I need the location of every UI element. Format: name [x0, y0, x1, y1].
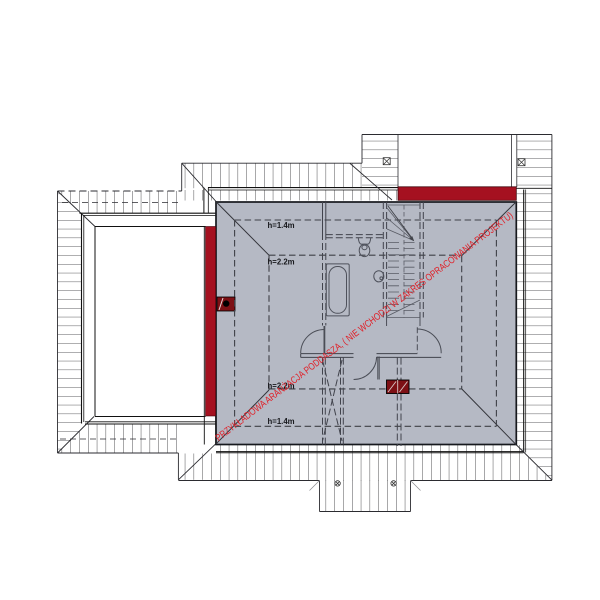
svg-text:h=2.2m: h=2.2m	[268, 257, 295, 266]
svg-text:h=1.4m: h=1.4m	[268, 417, 295, 426]
svg-text:h=1.4m: h=1.4m	[268, 221, 295, 230]
